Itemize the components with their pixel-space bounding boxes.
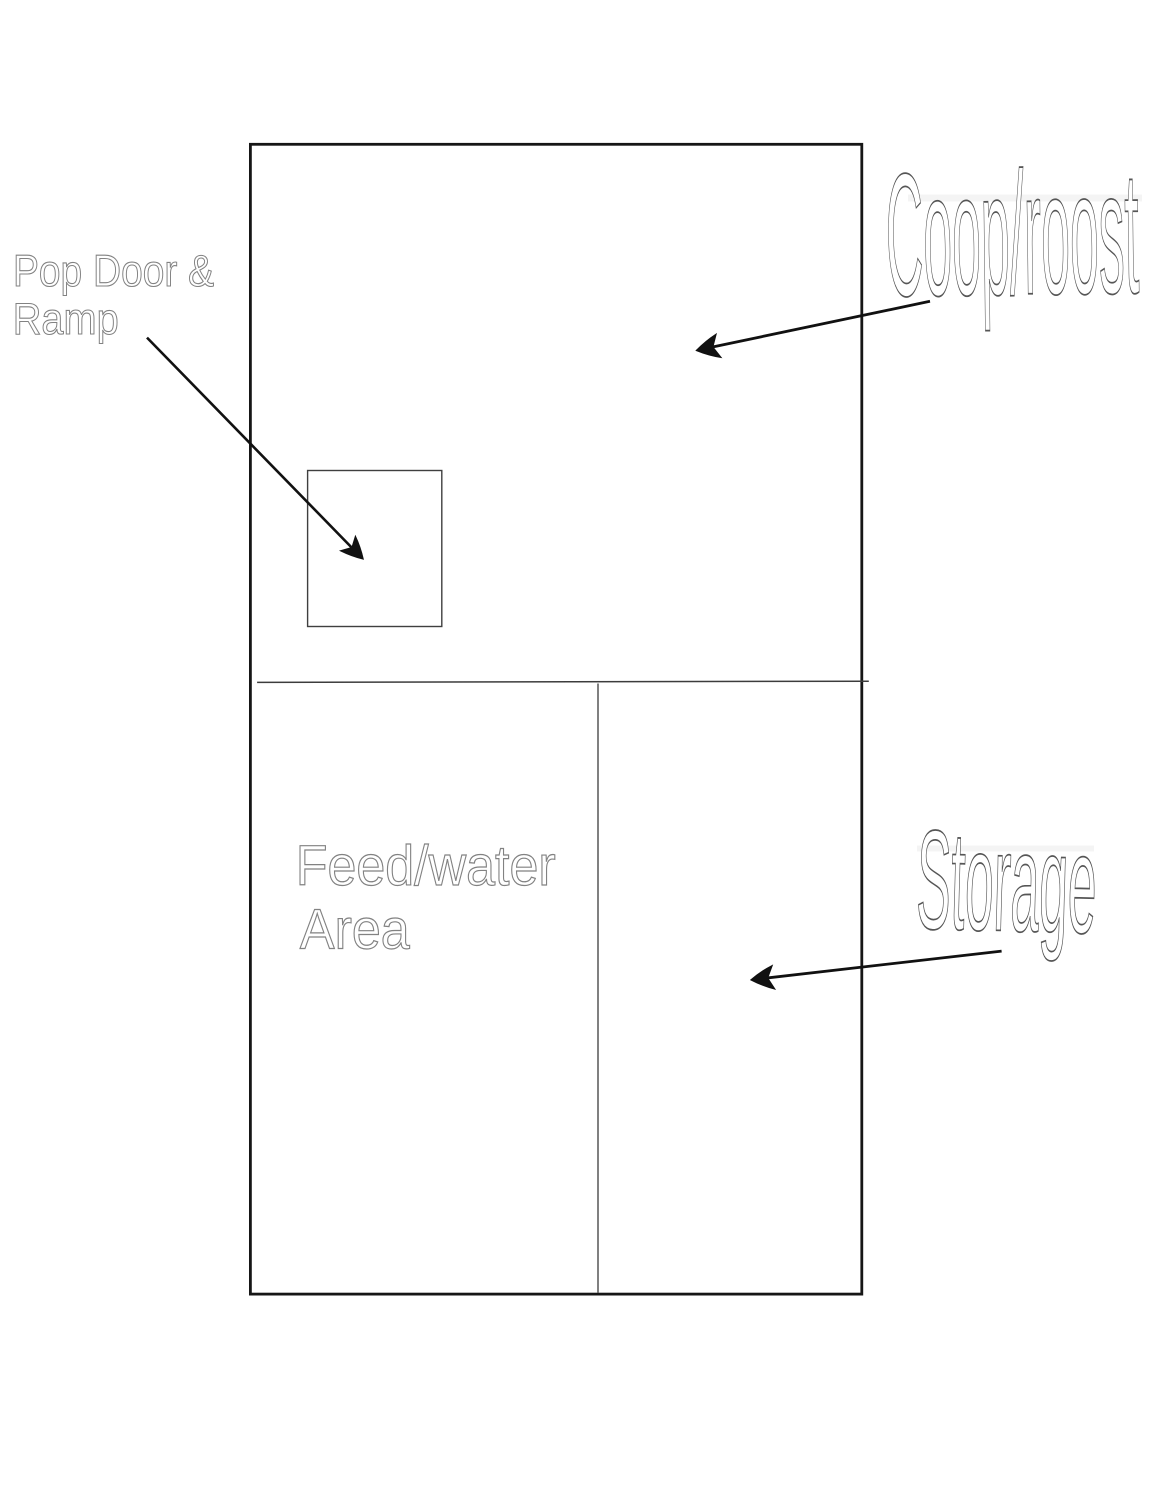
svg-text:Area: Area (300, 898, 411, 962)
svg-text:Ramp: Ramp (13, 294, 119, 344)
svg-text:Feed/water: Feed/water (296, 834, 556, 898)
svg-text:Pop Door &: Pop Door & (13, 246, 214, 296)
svg-text:Storage: Storage (915, 800, 1099, 963)
